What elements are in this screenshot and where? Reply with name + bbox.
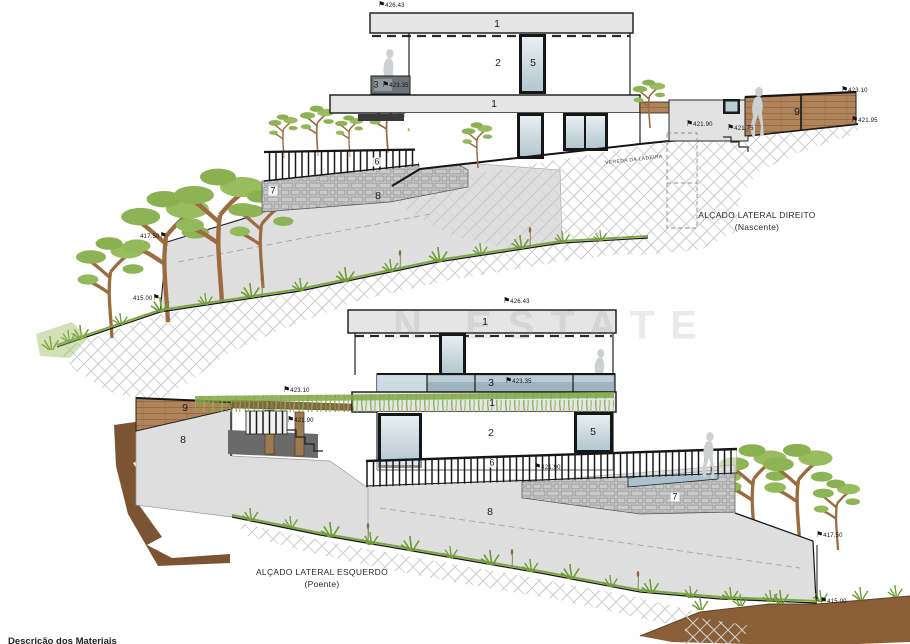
top-drawing-title: ALÇADO LATERAL DIREITO (Nascente) xyxy=(698,209,815,234)
elevation-marker: ⚑415.00 xyxy=(133,296,160,302)
label-left-wall: 8 xyxy=(180,435,186,446)
elevation-marker: ⚑421.75 xyxy=(727,126,754,132)
elevation-flag-icon: ⚑ xyxy=(503,297,510,305)
bottom-drawing-title: ALÇADO LATERAL ESQUERDO (Poente) xyxy=(256,566,388,591)
label-window: 5 xyxy=(590,427,596,438)
elevation-marker: ⚑423.10 xyxy=(841,88,868,94)
label-window: 5 xyxy=(530,58,536,69)
bottom-elevation-drawing xyxy=(114,310,910,644)
label-slope-wall: 8 xyxy=(375,191,381,202)
elevation-flag-icon: ⚑ xyxy=(841,86,848,94)
label-railing: 6 xyxy=(372,158,381,167)
glass-band xyxy=(377,374,615,392)
elevation-flag-icon: ⚑ xyxy=(686,120,693,128)
elevation-flag-icon: ⚑ xyxy=(505,377,512,385)
elevation-marker: ⚑421.90 xyxy=(686,122,713,128)
title-text: ALÇADO LATERAL DIREITO xyxy=(698,209,815,221)
elevation-flag-icon: ⚑ xyxy=(820,597,827,605)
elevation-marker: ⚑421.90 xyxy=(534,465,561,471)
elevation-flag-icon: ⚑ xyxy=(534,463,541,471)
label-parapet: 3 xyxy=(373,81,378,90)
elevation-flag-icon: ⚑ xyxy=(727,124,734,132)
elevation-flag-icon: ⚑ xyxy=(816,531,823,539)
top-roof-slab xyxy=(370,13,633,33)
subtitle-text: (Poente) xyxy=(256,578,388,590)
elevation-marker: ⚑417.50 xyxy=(816,533,843,539)
label-roof-slab: 1 xyxy=(482,317,488,328)
materials-legend-title: Descrição dos Materiais xyxy=(8,636,117,644)
elevation-marker: ⚑421.95 xyxy=(851,118,878,124)
elevation-flag-icon: ⚑ xyxy=(160,232,167,240)
label-wood-fence: 9 xyxy=(794,107,800,118)
elevation-marker: ⚑423.35 xyxy=(505,379,532,385)
stair-railing xyxy=(246,411,287,434)
elevation-sheet: N ESTATE 1 2 5 3 1 6 7 8 9 1 3 1 2 5 6 7… xyxy=(0,0,910,644)
elevation-marker: ⚑426.43 xyxy=(378,3,405,9)
label-mid-slab: 1 xyxy=(489,398,495,409)
subtitle-text: (Nascente) xyxy=(698,221,815,233)
elevation-flag-icon: ⚑ xyxy=(153,294,160,302)
elevation-marker: ⚑421.90 xyxy=(287,418,314,424)
elevation-marker: ⚑423.10 xyxy=(283,388,310,394)
top-mid-slab xyxy=(330,95,640,113)
label-upper-wall: 2 xyxy=(495,58,501,69)
top-building xyxy=(330,13,640,168)
label-glass-band: 3 xyxy=(488,378,494,389)
elevation-flag-icon: ⚑ xyxy=(283,386,290,394)
elevation-drawing-canvas xyxy=(0,0,910,644)
label-mid-slab: 1 xyxy=(491,99,497,110)
elevation-marker: ⚑426.43 xyxy=(503,299,530,305)
label-roof-slab: 1 xyxy=(494,19,500,30)
label-railing: 6 xyxy=(487,459,496,468)
label-lower-wall: 2 xyxy=(488,428,494,439)
elevation-flag-icon: ⚑ xyxy=(378,1,385,9)
label-stone-wall: 7 xyxy=(670,493,679,502)
label-slope-wall: 8 xyxy=(487,507,493,518)
elevation-flag-icon: ⚑ xyxy=(287,416,294,424)
label-stone-wall: 7 xyxy=(268,187,277,196)
elevation-marker: ⚑415.00 xyxy=(820,599,847,605)
elevation-marker: ⚑423.35 xyxy=(382,83,409,89)
label-wood-fence: 9 xyxy=(182,403,188,414)
title-text: ALÇADO LATERAL ESQUERDO xyxy=(256,566,388,578)
elevation-flag-icon: ⚑ xyxy=(851,116,858,124)
elevation-flag-icon: ⚑ xyxy=(382,81,389,89)
elevation-marker: ⚑417.50 xyxy=(140,234,167,240)
